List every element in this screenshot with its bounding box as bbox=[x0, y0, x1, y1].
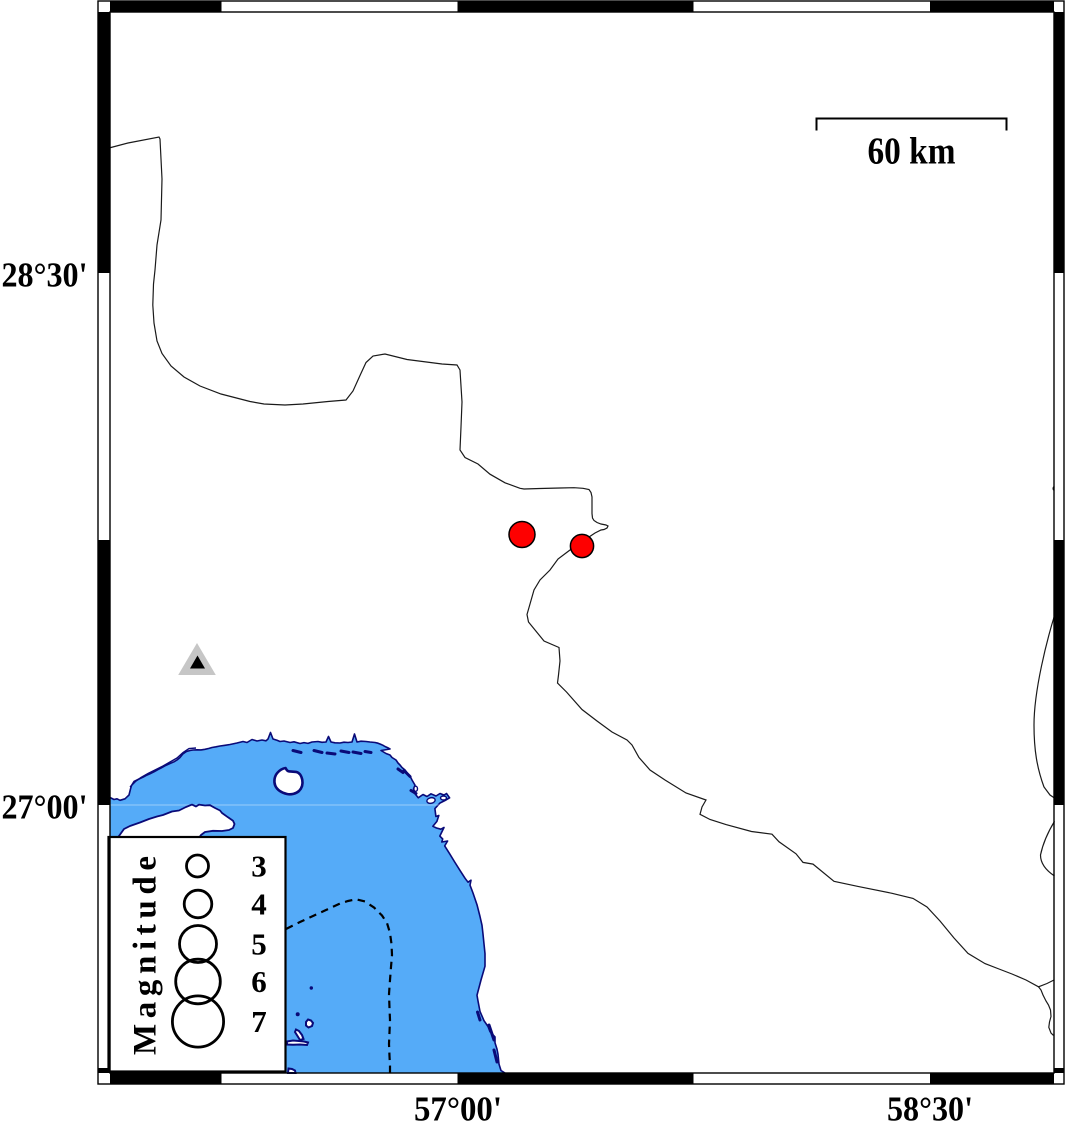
svg-text:6: 6 bbox=[251, 964, 267, 999]
svg-text:57°00': 57°00' bbox=[414, 1090, 502, 1122]
svg-text:60 km: 60 km bbox=[868, 131, 956, 173]
svg-text:58°30': 58°30' bbox=[887, 1090, 973, 1122]
svg-text:4: 4 bbox=[251, 887, 267, 922]
svg-text:28°30': 28°30' bbox=[2, 256, 88, 295]
svg-text:5: 5 bbox=[251, 927, 267, 962]
svg-text:27°00': 27°00' bbox=[2, 788, 88, 827]
svg-text:7: 7 bbox=[251, 1004, 267, 1039]
svg-text:3: 3 bbox=[251, 849, 267, 884]
